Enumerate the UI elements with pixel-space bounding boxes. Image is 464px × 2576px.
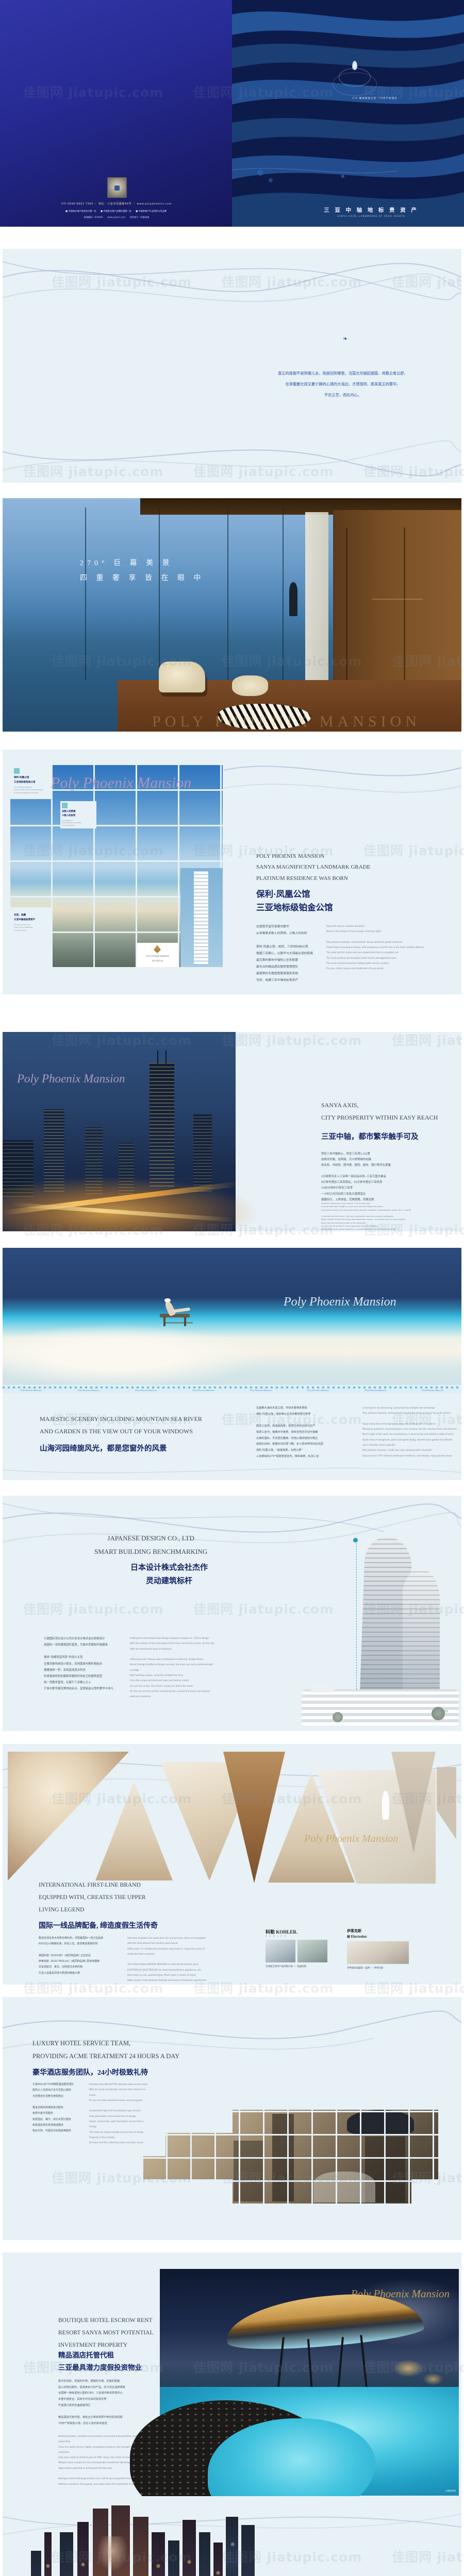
side3-en: COLLECTION FOR YOU SANYA AXIAL LANDMARKS…	[14, 924, 35, 931]
design-body-en: Inviting the international top design co…	[130, 1636, 215, 1700]
photo-grid: POLY PHOENIX MANSION 保利·凤凰公馆 Poly Phoeni…	[10, 765, 223, 967]
tower-tile	[180, 868, 223, 967]
wave-decoration-bottom	[3, 421, 461, 483]
mansion-body-en: Enjoy the city on vacation paradise Neve…	[326, 924, 455, 972]
side1-en: POLY PHOENIX MANSION SANYA MAGNIFICENT L…	[14, 786, 43, 794]
quote-spread: ❧ 真正的度假不是到哪儿去，而是回到哪里。当霞光尽褪起烟霞，闲看云卷云舒， 在承…	[3, 249, 461, 483]
side-block-3: 为您，收藏 三亚中轴地标贵资产 COLLECTION FOR YOU SANYA…	[14, 913, 35, 932]
logo-cn: 保利·凤凰公馆	[137, 959, 178, 962]
edge-sliver-tri	[437, 1767, 456, 1839]
strip-collage: Poly Phoenix Mansion 夜景效果图	[10, 2505, 284, 2576]
script-title: Poly Phoenix Mansion	[351, 2287, 450, 2300]
kohler-photo-1	[266, 1940, 295, 1962]
service-spread: LUXURY HOTEL SERVICE TEAM, PROVIDING ACM…	[3, 1997, 461, 2240]
axis-head-cn: 三亚中轴，都市繁华触手可及	[321, 1131, 419, 1142]
brand-electrolux: 伊莱克斯 ⊠ Electrolux 世界厨房电器第一品牌——伊莱克斯	[347, 1928, 409, 1970]
brands-spread: Poly Phoenix Mansion INTERNATIONAL FIRST…	[3, 1744, 461, 1985]
invest-spread: BOUTIQUE HOTEL ESCROW RENT RESORT SANYA …	[3, 2252, 461, 2496]
mansion-head-cn: 保利·凤凰公馆 三亚地标级铂金公馆	[256, 888, 333, 915]
view-headline: 270° 巨 幕 美 景 四 重 奢 享 皆 在 眼 中	[80, 556, 205, 586]
kitchen-tri	[95, 1782, 173, 1880]
cover-title-en: SANYA AXIAL LANDMARKS OF YOUR ASSETS	[314, 215, 428, 217]
ottoman	[232, 675, 268, 696]
night-city-photo: Poly Phoenix Mansion	[3, 1032, 236, 1231]
pool-caption: 鸟瞰效果图	[445, 2489, 456, 2493]
beach-photo: Poly Phoenix Mansion	[3, 1248, 461, 1385]
side1-cn: 保利·凤凰公馆 三亚地标级铂金公馆	[14, 776, 43, 785]
woman-silhouette	[289, 582, 297, 616]
brands-body-en: Selection of global rare wood and rare a…	[127, 1936, 210, 1984]
cover-postal: 邮政编码：620004 www.polycn.com 保利地产｜和者筑善	[49, 216, 184, 219]
kohler-sub: K O H L E R	[266, 1935, 327, 1937]
dashed-guide	[356, 1543, 357, 1689]
kohler-photo-2	[297, 1940, 327, 1962]
skyscraper	[150, 1063, 174, 1187]
scenery-body-cn: 在面朝大海的天成之境，环绕多重稀贵景观 保利·凤凰公馆，成就难以企及的奢侈居住梦…	[256, 1405, 354, 1460]
cover-title-cn: 三 亚 中 轴 地 标 贵 资 产	[314, 206, 428, 214]
logo-en: POLY PHOENIX MANSION	[137, 955, 178, 957]
logo-tile: POLY PHOENIX MANSION 保利·凤凰公馆	[137, 943, 178, 967]
electrolux-photo	[347, 1941, 409, 1964]
side3-cn: 为您，收藏 三亚中轴地标贵资产	[14, 913, 35, 922]
dotted-divider: Poly Phoenix Mansion Poly Phoenix Mansio…	[3, 1386, 461, 1393]
kohler-caption: 全球厨卫领导产品的集大成——美国科勒	[266, 1965, 327, 1968]
design-body-cn: 力邀国际顶尖设计公司日本设计株式会社担纲设计 用国际一流的建筑团队智慧，为城市贡…	[44, 1636, 139, 1692]
electrolux-logo: 伊莱克斯 ⊠ Electrolux	[347, 1928, 409, 1939]
cover-wave-art	[232, 0, 464, 227]
mansion-intro-spread: POLY PHOENIX MANSION 保利·凤凰公馆 Poly Phoeni…	[3, 750, 461, 994]
sanya-axis-spread: Poly Phoenix Mansion SANYA AXIS, CITY PR…	[3, 1032, 461, 1231]
side-block-2: 多数人的梦想 少数人的权利 THE DREAM OF MOST PEOPLE, …	[60, 801, 96, 828]
quote-text: 真正的度假不是到哪儿去，而是回到哪里。当霞光尽褪起烟霞，闲看云卷云舒， 在承载最…	[224, 368, 461, 401]
scenery-head-cn: 山海河园绮旎风光，都是您窗外的风景	[40, 1443, 167, 1453]
cover-spread: 27F'瞰海铂金公馆｜70年产权酒店 三 亚 中 轴 地 标 贵 资 产 SAN…	[0, 0, 464, 227]
oceanview-photo-spread: 270° 巨 幕 美 景 四 重 奢 享 皆 在 眼 中 POLY PHOENI…	[3, 498, 461, 732]
brands-head-en: INTERNATIONAL FIRST-LINE BRAND EQUIPPED …	[39, 1879, 146, 1916]
ocean-photo: 270° 巨 幕 美 景 四 重 奢 享 皆 在 眼 中 POLY PHOENI…	[3, 498, 461, 732]
wave-decoration-top	[3, 249, 461, 326]
phoenix-emblem-icon	[154, 945, 161, 953]
cover-tagline: 27F'瞰海铂金公馆｜70年产权酒店	[328, 97, 421, 100]
invest-body-cn: 繁华的地段，优越的环境，便捷的交通，完善的配套 贴心的物业服务，极具竞争力的产品…	[58, 2379, 151, 2427]
face-highlight	[97, 2536, 128, 2572]
side2-en: THE DREAM OF MOST PEOPLE, PRIVILEGES OF …	[62, 820, 95, 827]
guide-dot-icon	[353, 1538, 358, 1543]
brand-kohler: 科勒 KOHLER. K O H L E R 全球厨卫领导产品的集大成——美国科…	[266, 1928, 327, 1968]
invest-head-cn: 精品酒店托管代租 三亚最具潜力度假投资物业	[58, 2349, 142, 2375]
brands-head-cn: 国际一线品牌配备, 缔造度假生活传奇	[39, 1920, 158, 1930]
script-title: Poly Phoenix Mansion	[17, 1072, 125, 1086]
building-render: 效果图	[302, 1537, 459, 1728]
platinum-spread: Poly Phoenix Mansion 夜景效果图 PLATINUM RESI…	[3, 2496, 461, 2576]
triangle-collage: Poly Phoenix Mansion	[8, 1752, 456, 1885]
design-head-en: JAPANESE DESIGN CO., LTD SMART BUILDING …	[94, 1532, 207, 1558]
scenery-spread: Poly Phoenix Mansion Poly Phoenix Mansio…	[3, 1248, 461, 1480]
kohler-logo: 科勒 KOHLER.	[266, 1928, 327, 1935]
palm-icon	[432, 1707, 445, 1720]
cover-contact: VIP:0898-8882 7999 ｜ 地址：三亚市凤凰路46号 ｜ www.…	[49, 202, 184, 206]
brands-body-cn: 甄选全球名贵木材和珍稀石材，并配备国际一线卫浴品牌 6000元/㎡精装标准，拎包…	[39, 1936, 126, 1976]
mansion-head-en: POLY PHOENIX MANSION SANYA MAGNIFICENT L…	[256, 851, 370, 884]
side-block-1: 保利·凤凰公馆 三亚地标级铂金公馆 POLY PHOENIX MANSION S…	[14, 768, 43, 794]
scenery-head-en: MAJESTIC SCENERY INCLUDING MOUNTAIN SEA …	[40, 1413, 202, 1437]
pool-photo: Poly Phoenix Mansion 鸟瞰效果图	[160, 2269, 459, 2496]
script-title: Poly Phoenix Mansion	[284, 1295, 396, 1309]
script-title: Poly Phoenix Mansion	[51, 774, 191, 792]
photo-mosaic	[143, 2110, 438, 2204]
quote-ornament-icon: ❧	[343, 335, 347, 342]
service-body-cn: 引进KOLLECTIVE精致酒店服务团队 提供从入住到出行全方位贴心服务 为您量…	[32, 2082, 87, 2134]
curtain	[305, 512, 328, 699]
garden-lights	[393, 2360, 424, 2377]
service-body-en: Introduce the KOLLECTIVE delicate hotel …	[89, 2082, 151, 2146]
seal-stamp	[107, 177, 127, 198]
service-head-cn: 豪华酒店服务团队，24小时极致礼待	[32, 2067, 148, 2077]
axis-head-en: SANYA AXIS, CITY PROSPERITY WITHIN EASY …	[321, 1099, 438, 1124]
render-caption: 效果图	[442, 1710, 448, 1713]
brochure-canvas: 27F'瞰海铂金公馆｜70年产权酒店 三 亚 中 轴 地 标 贵 资 产 SAN…	[0, 0, 464, 2576]
sandbar	[3, 1325, 260, 1387]
script-title: Poly Phoenix Mansion	[304, 1833, 398, 1845]
invest-head-en: BOUTIQUE HOTEL ESCROW RENT RESORT SANYA …	[58, 2314, 154, 2351]
teal-accent-icon	[14, 768, 20, 774]
service-head-en: LUXURY HOTEL SERVICE TEAM, PROVIDING ACM…	[32, 2037, 179, 2063]
electrolux-caption: 世界厨房电器第一品牌——伊莱克斯	[347, 1967, 409, 1970]
gold-outline-text: POLY PHOENIX MANSION	[152, 713, 461, 731]
second-tower	[403, 1569, 440, 1698]
side2-cn: 多数人的梦想 少数人的权利	[62, 810, 95, 819]
ripple-icon-outer	[333, 72, 377, 96]
design-spread: JAPANESE DESIGN CO., LTD SMART BUILDING …	[3, 1496, 461, 1731]
lounge-chair	[159, 662, 205, 692]
axis-body-cn: 掌控三亚中轴核心，得享三亚湾1.2公里 依傍河东路、迎宾路、月川桥等城市动脉 商…	[321, 1151, 455, 1203]
teal-accent-icon	[62, 803, 68, 808]
design-head-cn: 日本设计株式会社杰作 灵动建筑标杆	[130, 1562, 208, 1588]
cover-honors: ■ 中国央企地产综合实力第一名 ■ 中国央企地产品牌价值第一名 ■ 中国房地产行…	[39, 210, 193, 213]
axis-body-en: Control of Sanya axis core, held at 1.2 …	[321, 1202, 455, 1231]
strip-label: Poly Phoenix Mansion	[21, 1389, 42, 1392]
scenery-body-en: In facing the sea tiancheng, surrounded …	[362, 1405, 458, 1459]
